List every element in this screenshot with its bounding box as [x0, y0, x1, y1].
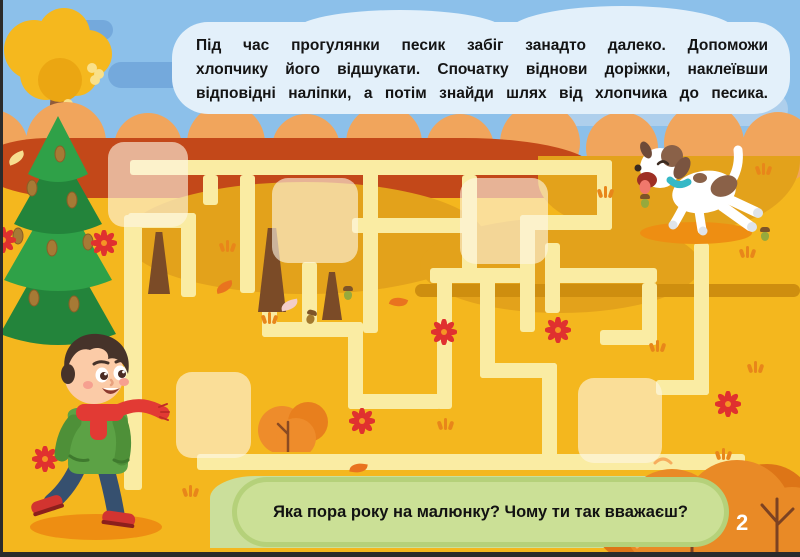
dog	[622, 138, 772, 250]
instruction-line: відповідні наліпки, а потім знайди шлях …	[196, 82, 768, 106]
boy-shoe	[101, 510, 136, 528]
sticker-slot[interactable]	[272, 178, 358, 263]
question-bubble: Яка пора року на малюнку? Чому ти так вв…	[237, 482, 724, 542]
question-text: Яка пора року на малюнку? Чому ти так вв…	[237, 482, 724, 542]
page-edge-bottom	[0, 552, 800, 557]
sticker-slot[interactable]	[578, 378, 662, 463]
sticker-slot[interactable]	[108, 142, 188, 227]
instruction-text: Під час прогулянки песик забіг занадто д…	[196, 34, 768, 106]
instruction-line: хлопчику його відшукати. Спочатку віднов…	[196, 58, 768, 82]
scene: Під час прогулянки песик забіг занадто д…	[0, 0, 800, 557]
page-edge-left	[0, 0, 3, 557]
page-number: 2	[736, 510, 748, 536]
boy	[18, 322, 170, 544]
sticker-slot[interactable]	[460, 178, 548, 264]
instruction-line: Під час прогулянки песик забіг занадто д…	[196, 34, 768, 58]
sticker-slot[interactable]	[176, 372, 251, 458]
